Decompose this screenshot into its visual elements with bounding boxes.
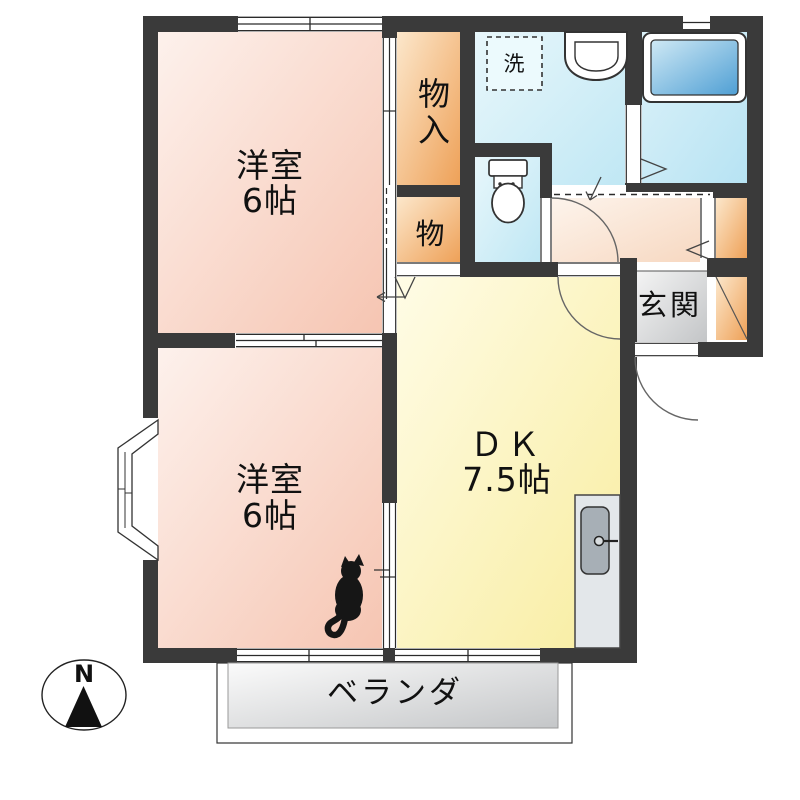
dk-label: ＤＫ — [407, 428, 607, 463]
bedroom-top-size: 6帖 — [170, 184, 370, 219]
door-dk-opening — [558, 262, 620, 277]
bathtub — [643, 33, 746, 102]
wall-wash-toilet-divider — [475, 143, 552, 157]
bath-window — [683, 16, 710, 29]
entrance-door-arc — [635, 357, 698, 420]
wall-bedroom2-dk-divider — [382, 333, 397, 503]
compass-north-label: N — [66, 662, 102, 687]
wall-left-lower — [143, 560, 158, 663]
bedroom-bottom-size: 6帖 — [170, 499, 370, 534]
wall-mid-bedrooms-left — [143, 333, 235, 348]
wall-bedroom1-east-stub — [382, 16, 397, 38]
kitchen-faucet — [595, 537, 604, 546]
window-bedroom2-bottom — [237, 648, 383, 663]
wall-shoe-mid — [707, 258, 763, 277]
door-closet-top — [382, 38, 397, 185]
wall-top — [143, 16, 763, 32]
closet-top-label: 物入 — [410, 68, 448, 158]
kitchen-counter — [575, 495, 620, 648]
dk-size: 7.5帖 — [407, 463, 607, 498]
floorplan-canvas: 洋室 6帖 洋室 6帖 ＤＫ 7.5帖 物入 物 洗 玄関 ベランダ N — [0, 0, 800, 800]
door-entrance-opening — [635, 342, 698, 357]
entrance-step-strip — [633, 262, 707, 271]
vanity-sink — [565, 32, 627, 80]
entrance-label: 玄関 — [620, 290, 720, 320]
closet-mid-label: 物 — [408, 219, 452, 249]
window-dk-bottom — [395, 648, 540, 663]
bedroom-top-label: 洋室 — [170, 149, 370, 184]
washer-label: 洗 — [496, 53, 532, 75]
door-bedrooms-divider — [236, 333, 382, 348]
bay-window — [118, 420, 158, 560]
wall-left-upper — [143, 16, 158, 418]
wall-hall-right-stub — [713, 192, 763, 198]
door-toilet — [540, 198, 552, 262]
door-bedroom1-east — [382, 185, 397, 333]
window-bedroom1-top — [238, 16, 382, 32]
wall-entrance-bottom-right — [698, 342, 763, 357]
veranda-label: ベランダ — [290, 677, 500, 710]
door-closet-mid — [397, 262, 460, 277]
wall-bath-bottom — [625, 183, 763, 192]
toilet-icon — [489, 160, 527, 223]
hall-floor — [552, 198, 700, 262]
wall-storage-column — [460, 16, 475, 262]
wall-bottom — [143, 648, 637, 663]
wall-toilet-bottom — [460, 262, 558, 277]
shoe-closet-top-floor — [716, 198, 747, 258]
bedroom-bottom-label: 洋室 — [170, 463, 370, 498]
